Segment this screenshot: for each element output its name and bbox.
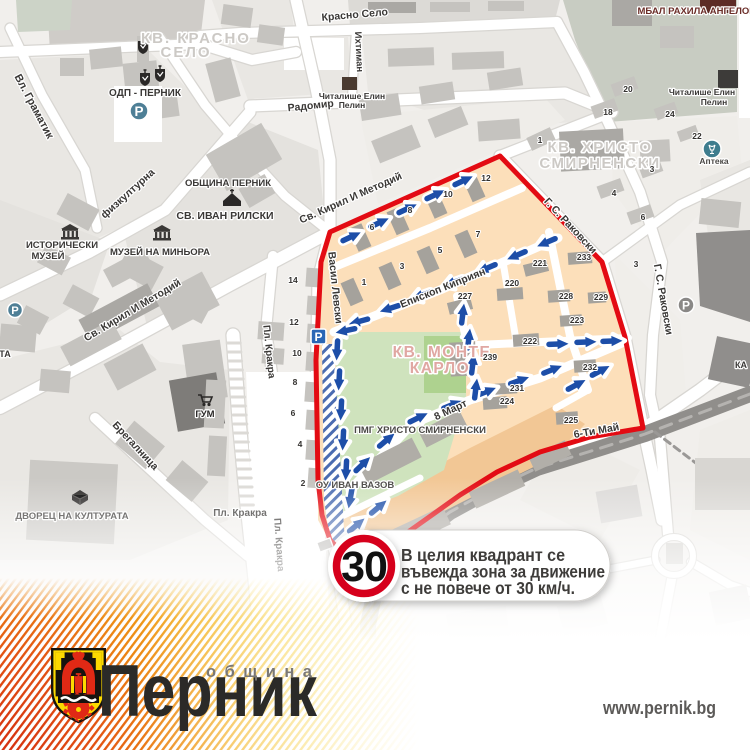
svg-text:3: 3 — [634, 259, 639, 269]
svg-text:7: 7 — [476, 229, 481, 239]
svg-text:24: 24 — [665, 109, 675, 119]
svg-text:3: 3 — [400, 261, 405, 271]
svg-text:6: 6 — [641, 212, 646, 222]
svg-text:www.pernik.bg: www.pernik.bg — [602, 698, 716, 718]
svg-text:КА: КА — [735, 360, 747, 370]
svg-text:СЕЛО: СЕЛО — [160, 44, 211, 61]
svg-text:СВ. ИВАН РИЛСКИ: СВ. ИВАН РИЛСКИ — [176, 210, 273, 222]
svg-text:18: 18 — [603, 107, 613, 117]
svg-text:ТА: ТА — [0, 349, 11, 359]
svg-text:224: 224 — [500, 396, 514, 406]
svg-text:228: 228 — [559, 291, 573, 301]
svg-text:22: 22 — [692, 131, 702, 141]
svg-text:P: P — [314, 330, 322, 344]
svg-text:229: 229 — [594, 292, 608, 302]
svg-text:ГУМ: ГУМ — [195, 409, 214, 420]
svg-text:СМИРНЕНСКИ: СМИРНЕНСКИ — [539, 155, 660, 172]
svg-text:231: 231 — [510, 383, 524, 393]
svg-text:12: 12 — [481, 173, 491, 183]
svg-text:8: 8 — [293, 377, 298, 387]
svg-text:233: 233 — [577, 252, 591, 262]
svg-text:ОДП - ПЕРНИК: ОДП - ПЕРНИК — [109, 88, 182, 99]
svg-text:10: 10 — [443, 189, 453, 199]
svg-text:14: 14 — [288, 275, 298, 285]
svg-text:12: 12 — [289, 317, 299, 327]
svg-text:221: 221 — [533, 258, 547, 268]
svg-text:20: 20 — [623, 84, 633, 94]
svg-text:Ихтиман: Ихтиман — [352, 31, 365, 72]
svg-text:239: 239 — [483, 352, 497, 362]
svg-text:5: 5 — [438, 245, 443, 255]
svg-text:10: 10 — [292, 348, 302, 358]
svg-text:МБАЛ РАХИЛА АНГЕЛОВА: МБАЛ РАХИЛА АНГЕЛОВА — [637, 6, 750, 17]
svg-text:Аптека: Аптека — [699, 156, 728, 166]
svg-text:Пелин: Пелин — [701, 97, 728, 107]
svg-text:P: P — [682, 298, 690, 312]
svg-text:1: 1 — [362, 277, 367, 287]
svg-text:220: 220 — [505, 278, 519, 288]
svg-text:4: 4 — [612, 188, 617, 198]
svg-text:225: 225 — [564, 415, 578, 425]
svg-text:КВ. ХРИСТО: КВ. ХРИСТО — [547, 139, 652, 156]
svg-text:Пелин: Пелин — [339, 100, 366, 110]
svg-text:P: P — [11, 305, 19, 317]
svg-text:222: 222 — [523, 336, 537, 346]
svg-text:ПМГ ХРИСТО СМИРНЕНСКИ: ПМГ ХРИСТО СМИРНЕНСКИ — [354, 425, 486, 436]
svg-text:6: 6 — [370, 222, 375, 232]
svg-text:223: 223 — [570, 315, 584, 325]
svg-text:Читалише Елин: Читалише Елин — [669, 87, 735, 97]
svg-text:ИСТОРИЧЕСКИ: ИСТОРИЧЕСКИ — [26, 240, 98, 251]
svg-text:227: 227 — [458, 291, 472, 301]
svg-text:8: 8 — [408, 205, 413, 215]
svg-text:КВ. МОНТЕ: КВ. МОНТЕ — [393, 344, 492, 361]
svg-text:ОБЩИНА ПЕРНИК: ОБЩИНА ПЕРНИК — [185, 178, 271, 189]
svg-text:6: 6 — [291, 408, 296, 418]
svg-text:3: 3 — [650, 164, 655, 174]
svg-text:P: P — [134, 104, 143, 119]
svg-text:МУЗЕЙ: МУЗЕЙ — [32, 250, 65, 262]
svg-text:МУЗЕЙ НА МИНЬОРА: МУЗЕЙ НА МИНЬОРА — [110, 246, 210, 258]
svg-text:с не повече от 30 км/ч.: с не повече от 30 км/ч. — [401, 578, 575, 598]
svg-text:община: община — [206, 663, 320, 681]
svg-text:30: 30 — [341, 543, 387, 591]
svg-text:1: 1 — [538, 135, 543, 145]
svg-text:КАРЛО: КАРЛО — [410, 360, 470, 377]
svg-text:232: 232 — [583, 362, 597, 372]
